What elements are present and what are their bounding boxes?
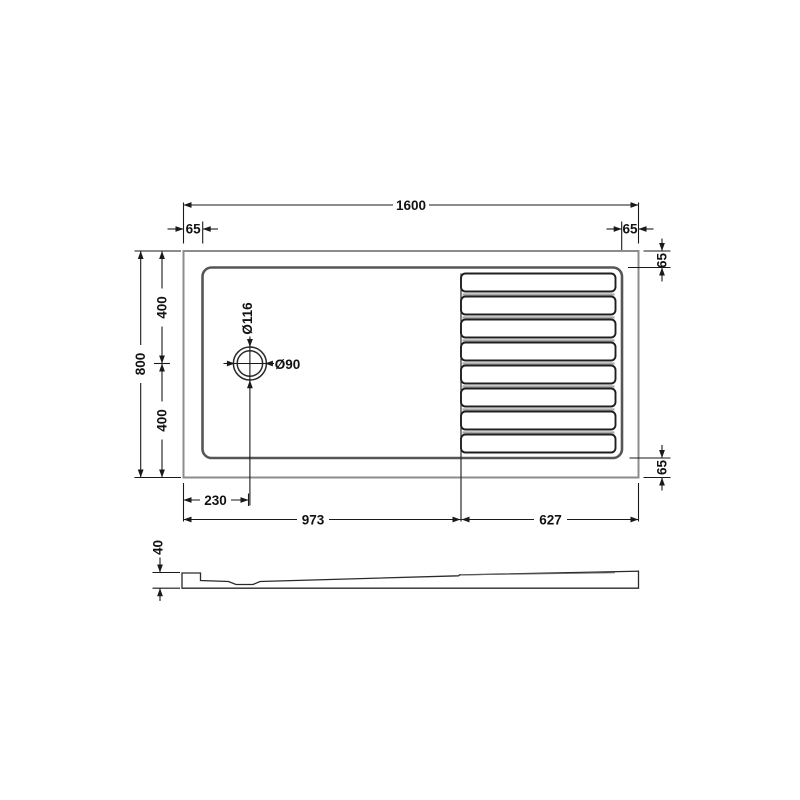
slat bbox=[461, 366, 616, 384]
slat bbox=[461, 320, 616, 338]
side-view: 40 bbox=[151, 537, 639, 601]
drying-zone-value: 627 bbox=[539, 512, 562, 527]
right-rim-value: 65 bbox=[622, 222, 638, 237]
dim-right-rim: 65 bbox=[607, 222, 654, 251]
drain-inner-diameter-label: Ø90 bbox=[275, 357, 301, 372]
dim-drain-offset: 230 bbox=[184, 493, 249, 508]
slat bbox=[461, 297, 616, 315]
tray-height-value: 40 bbox=[151, 540, 166, 555]
drain-offset-value: 230 bbox=[204, 493, 227, 508]
slat bbox=[461, 435, 616, 453]
top-right-rim-value: 65 bbox=[655, 253, 670, 269]
dim-depth-upper: 400 bbox=[155, 251, 170, 364]
slat bbox=[461, 389, 616, 407]
dim-showering-area: 973 bbox=[184, 483, 639, 527]
drain-outer-diameter-label: Ø116 bbox=[240, 302, 255, 335]
overall-depth-value: 800 bbox=[133, 353, 148, 376]
shower-tray-drawing: Ø116 Ø90 1600 65 65 bbox=[0, 0, 800, 800]
dim-left-rim: 65 bbox=[168, 222, 219, 244]
lower-depth-value: 400 bbox=[155, 409, 170, 432]
slat bbox=[461, 412, 616, 430]
slat bbox=[461, 274, 616, 292]
dim-overall-depth: 800 bbox=[133, 251, 181, 478]
top-view: Ø116 Ø90 1600 65 65 bbox=[133, 198, 670, 528]
showering-zone-value: 973 bbox=[302, 512, 325, 527]
dim-overall-width: 1600 bbox=[184, 198, 639, 244]
technical-drawing-canvas: Ø116 Ø90 1600 65 65 bbox=[0, 0, 800, 800]
slat bbox=[461, 343, 616, 361]
bottom-right-rim-value: 65 bbox=[655, 460, 670, 476]
overall-width-value: 1600 bbox=[396, 198, 426, 213]
dim-drying-area: 627 bbox=[462, 512, 639, 527]
dim-depth-lower: 400 bbox=[154, 364, 170, 478]
upper-depth-value: 400 bbox=[155, 296, 170, 319]
left-rim-value: 65 bbox=[186, 222, 202, 237]
dim-tray-height: 40 bbox=[151, 537, 181, 601]
